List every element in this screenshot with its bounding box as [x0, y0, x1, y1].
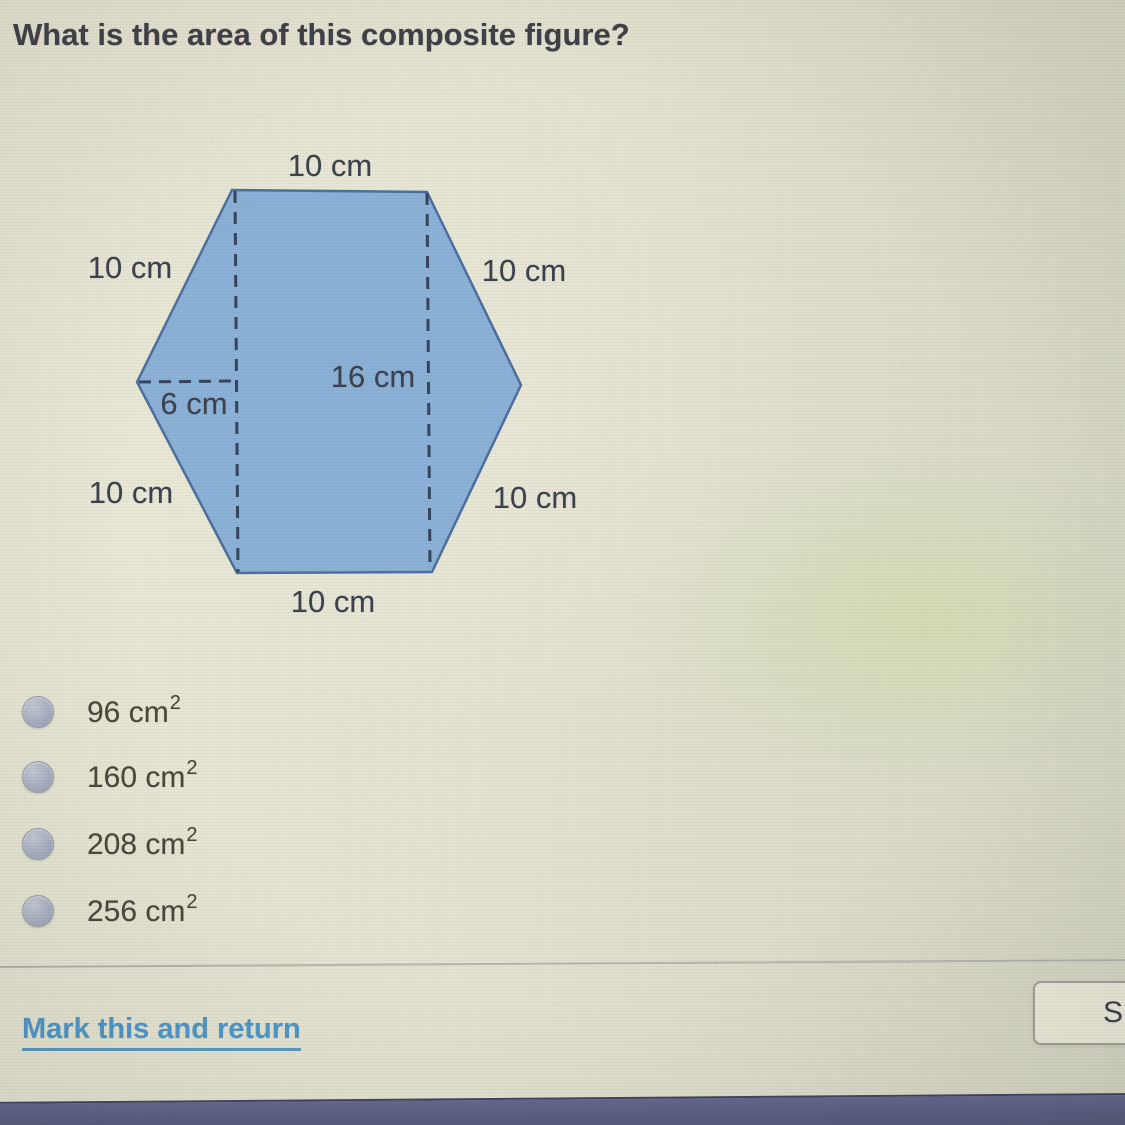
- choice-row-4[interactable]: 256 cm2: [22, 889, 197, 933]
- dim-label-upper-right: 10 cm: [482, 253, 566, 289]
- save-button[interactable]: S: [1033, 981, 1125, 1045]
- question-title: What is the area of this composite figur…: [13, 17, 630, 53]
- choice-value-2: 160 cm: [87, 761, 185, 794]
- dim-label-lower-right: 10 cm: [493, 480, 577, 516]
- choice-label-1: 96 cm2: [87, 694, 180, 730]
- mark-this-and-return-link[interactable]: Mark this and return: [22, 1013, 301, 1051]
- radio-button-choice-3[interactable]: [22, 828, 54, 860]
- choice-exponent-1: 2: [170, 692, 181, 714]
- choice-value-3: 208 cm: [87, 828, 185, 861]
- quiz-page: What is the area of this composite figur…: [0, 0, 1125, 1125]
- choice-label-3: 208 cm2: [87, 826, 197, 862]
- choice-label-4: 256 cm2: [87, 893, 197, 929]
- choice-exponent-4: 2: [186, 891, 197, 913]
- dim-label-bottom: 10 cm: [291, 584, 375, 620]
- dim-label-lower-left: 10 cm: [89, 475, 173, 511]
- radio-button-choice-4[interactable]: [22, 895, 54, 927]
- choice-value-4: 256 cm: [87, 895, 185, 928]
- dim-label-top: 10 cm: [288, 148, 372, 184]
- bottom-taskbar: [0, 1093, 1125, 1125]
- choice-value-1: 96 cm: [87, 696, 169, 729]
- radio-button-choice-2[interactable]: [22, 761, 54, 793]
- dim-label-triangle-base: 6 cm: [160, 386, 227, 422]
- choice-row-1[interactable]: 96 cm2: [22, 690, 180, 734]
- hexagon-shape: [137, 190, 521, 573]
- radio-button-choice-1[interactable]: [22, 696, 54, 728]
- save-button-label: S: [1103, 996, 1123, 1029]
- choice-exponent-2: 2: [186, 757, 197, 779]
- choice-row-2[interactable]: 160 cm2: [22, 755, 197, 799]
- choice-exponent-3: 2: [186, 824, 197, 846]
- choice-row-3[interactable]: 208 cm2: [22, 822, 197, 866]
- footer-divider: [0, 959, 1125, 968]
- dim-label-height: 16 cm: [331, 359, 415, 395]
- dim-label-upper-left: 10 cm: [88, 250, 172, 286]
- choice-label-2: 160 cm2: [87, 759, 197, 795]
